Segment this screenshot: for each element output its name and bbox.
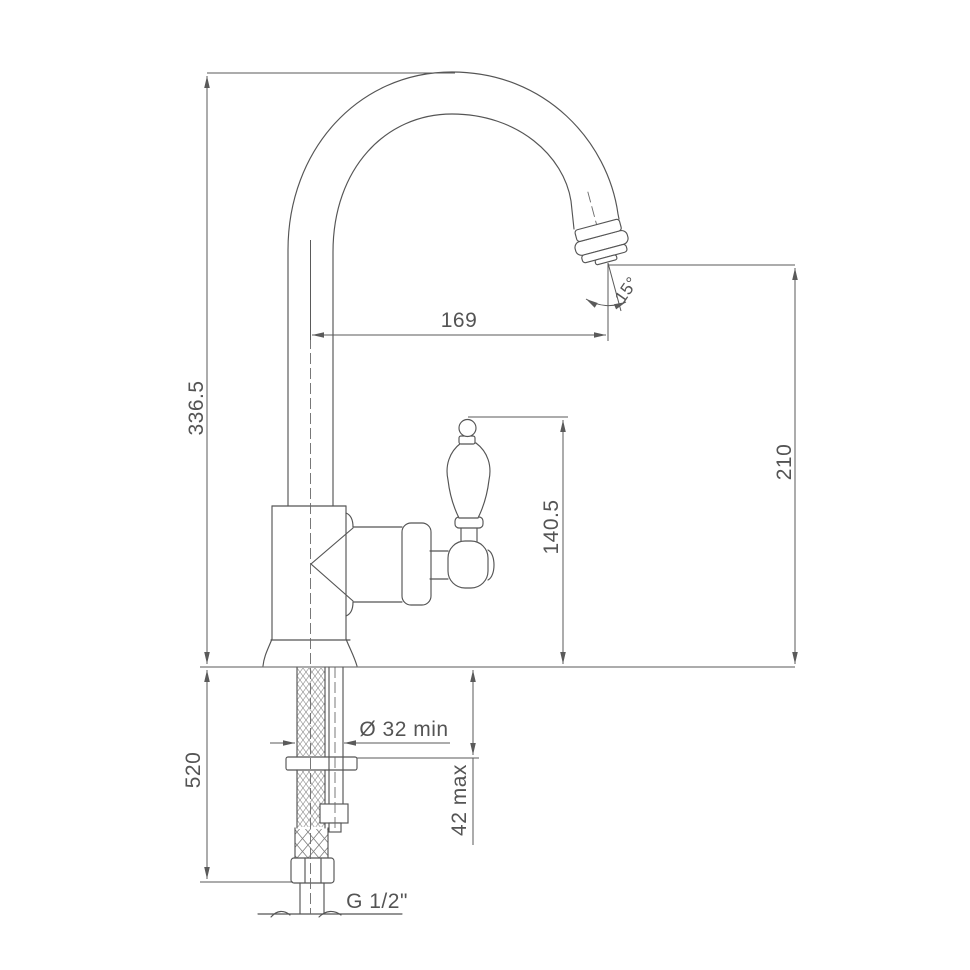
dim-handle-height-label: 140.5 (540, 499, 563, 554)
spout-aerator (562, 185, 633, 269)
dim-below-deck-length: 520 (182, 670, 207, 879)
dim-spout-reach-label: 169 (441, 309, 478, 332)
dim-overall-height-label: 336.5 (185, 380, 208, 435)
dim-mounting-hole-label: Ø 32 min (359, 718, 448, 741)
dimension-annotations: 336.5 520 169 210 140.5 42 max (182, 73, 796, 913)
mounting-washer (286, 757, 357, 770)
faucet-body (272, 506, 402, 639)
base-flange (263, 639, 357, 666)
supply-hoses (258, 667, 402, 917)
connection-nut (291, 858, 334, 883)
technical-drawing-sheet: 336.5 520 169 210 140.5 42 max (0, 0, 970, 970)
dim-connection-thread-label: G 1/2" (346, 890, 408, 913)
dim-spout-angle-label: 15° (611, 273, 642, 306)
gooseneck-spout (288, 72, 619, 506)
dim-outlet-height-label: 210 (773, 444, 796, 481)
handle-knob (459, 420, 476, 437)
dim-overall-height: 336.5 (185, 76, 208, 664)
dim-handle-height: 140.5 (540, 420, 563, 664)
dim-spout-angle: 15° (586, 263, 642, 311)
dim-deck-thickness-label: 42 max (448, 764, 471, 836)
dim-spout-reach: 169 (312, 309, 606, 335)
dim-outlet-height: 210 (773, 268, 796, 664)
lever-handle (402, 420, 494, 606)
faucet-outline (258, 72, 633, 917)
dim-below-deck-label: 520 (182, 752, 205, 789)
technical-drawing-canvas: 336.5 520 169 210 140.5 42 max (0, 0, 970, 970)
hose-fitting (320, 804, 348, 823)
dim-connection-thread: G 1/2" (346, 890, 408, 913)
